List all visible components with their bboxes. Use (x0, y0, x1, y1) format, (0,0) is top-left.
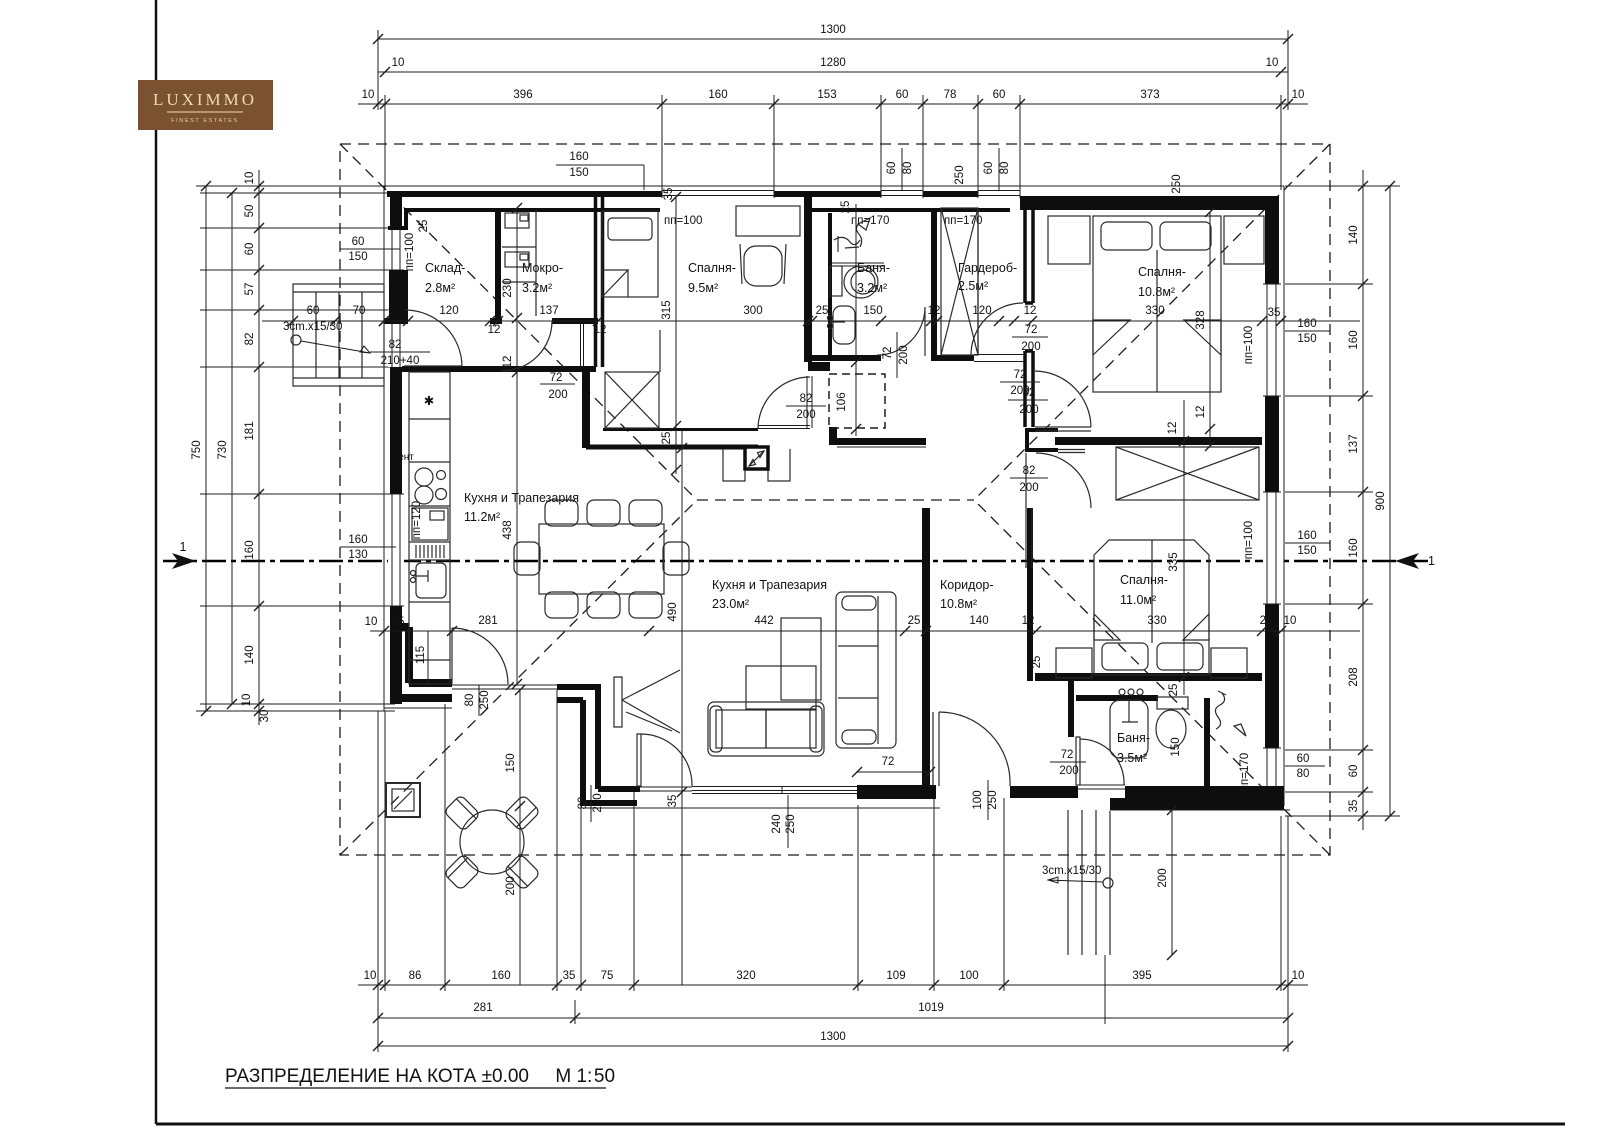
svg-text:153: 153 (817, 89, 836, 101)
svg-text:315: 315 (661, 300, 673, 319)
svg-text:1300: 1300 (820, 24, 846, 36)
svg-text:Кухня и Трапезария: Кухня и Трапезария (464, 491, 579, 505)
svg-text:Спалня-: Спалня- (1138, 265, 1186, 279)
svg-text:пп=120: пп=120 (411, 501, 423, 539)
svg-text:160: 160 (708, 89, 727, 101)
svg-text:210+40: 210+40 (381, 355, 420, 367)
svg-text:12: 12 (502, 356, 514, 369)
svg-text:3.5м²: 3.5м² (1117, 751, 1147, 765)
svg-text:160: 160 (569, 151, 588, 163)
svg-text:72: 72 (1014, 369, 1027, 381)
svg-text:250: 250 (479, 690, 491, 709)
svg-text:115: 115 (415, 646, 427, 664)
svg-text:1: 1 (180, 540, 187, 554)
svg-text:78: 78 (944, 89, 957, 101)
svg-text:25: 25 (908, 615, 921, 627)
svg-text:70: 70 (353, 305, 366, 317)
svg-text:3.2м²: 3.2м² (857, 281, 887, 295)
svg-text:150: 150 (863, 305, 882, 317)
svg-text:137: 137 (1348, 434, 1360, 453)
svg-text:150: 150 (1297, 545, 1316, 557)
svg-text:281: 281 (473, 1002, 492, 1014)
svg-text:23.0м²: 23.0м² (712, 597, 749, 611)
svg-text:82: 82 (800, 393, 813, 405)
svg-text:11.0м²: 11.0м² (1120, 593, 1156, 607)
svg-text:150: 150 (1297, 333, 1316, 345)
svg-text:160: 160 (491, 970, 510, 982)
svg-text:335: 335 (1168, 552, 1180, 571)
svg-text:35: 35 (667, 795, 679, 808)
svg-text:86: 86 (409, 970, 422, 982)
svg-text:12: 12 (928, 305, 941, 317)
svg-text:730: 730 (217, 440, 229, 459)
svg-text:60: 60 (896, 89, 909, 101)
svg-text:75: 75 (601, 970, 614, 982)
svg-text:1300: 1300 (820, 1031, 846, 1043)
svg-text:LUXIMMO: LUXIMMO (153, 90, 257, 109)
svg-text:25: 25 (1260, 615, 1273, 627)
svg-text:109: 109 (886, 970, 905, 982)
svg-text:72: 72 (1025, 324, 1038, 336)
svg-text:200: 200 (1059, 765, 1078, 777)
svg-text:10: 10 (1284, 615, 1297, 627)
svg-text:11.2м²: 11.2м² (464, 510, 500, 524)
svg-text:12: 12 (1022, 615, 1035, 627)
svg-text:60: 60 (307, 305, 320, 317)
svg-text:10.8м²: 10.8м² (940, 597, 977, 611)
svg-text:60: 60 (244, 243, 256, 256)
svg-text:12: 12 (594, 324, 607, 336)
svg-text:150: 150 (569, 167, 588, 179)
svg-text:12: 12 (1024, 305, 1037, 317)
svg-text:250: 250 (1171, 174, 1183, 193)
svg-text:пп=100: пп=100 (1243, 521, 1255, 559)
svg-text:25: 25 (418, 220, 430, 233)
svg-text:10: 10 (364, 970, 377, 982)
svg-text:50: 50 (244, 205, 256, 218)
svg-text:82: 82 (1023, 387, 1036, 399)
svg-text:373: 373 (1140, 89, 1159, 101)
svg-text:60: 60 (352, 236, 365, 248)
svg-text:120: 120 (439, 305, 458, 317)
svg-text:72: 72 (882, 756, 895, 768)
svg-text:10: 10 (1292, 89, 1305, 101)
svg-text:200: 200 (1021, 341, 1040, 353)
svg-text:200: 200 (1019, 404, 1038, 416)
svg-text:12: 12 (1167, 422, 1179, 435)
svg-text:200: 200 (548, 389, 567, 401)
svg-text:250: 250 (987, 790, 999, 809)
svg-text:вент: вент (393, 452, 414, 463)
svg-text:82: 82 (1023, 465, 1036, 477)
svg-text:130: 130 (348, 549, 367, 561)
svg-text:10: 10 (365, 616, 378, 628)
svg-text:100: 100 (959, 970, 978, 982)
svg-text:200: 200 (1019, 482, 1038, 494)
svg-text:35: 35 (663, 188, 675, 201)
svg-text:25: 25 (1031, 656, 1043, 669)
svg-text:10: 10 (1266, 57, 1279, 69)
svg-text:60: 60 (983, 162, 995, 175)
svg-text:3.2м²: 3.2м² (522, 281, 552, 295)
svg-text:80: 80 (999, 162, 1011, 175)
svg-text:396: 396 (513, 89, 532, 101)
svg-text:160: 160 (1297, 318, 1316, 330)
svg-text:80: 80 (464, 694, 476, 707)
svg-text:60: 60 (1348, 765, 1360, 778)
svg-text:230: 230 (502, 278, 514, 297)
svg-text:250: 250 (785, 814, 797, 833)
svg-text:35: 35 (1348, 800, 1360, 813)
svg-text:200: 200 (898, 345, 910, 364)
svg-text:FINEST ESTATES: FINEST ESTATES (171, 118, 239, 124)
svg-text:35: 35 (563, 970, 576, 982)
svg-text:320: 320 (736, 970, 755, 982)
svg-text:пп=100: пп=100 (1243, 326, 1255, 364)
svg-text:140: 140 (244, 645, 256, 664)
svg-text:1280: 1280 (820, 57, 846, 69)
svg-text:12: 12 (1195, 406, 1207, 419)
svg-text:240: 240 (771, 814, 783, 833)
svg-text:10: 10 (362, 89, 375, 101)
svg-text:160: 160 (1348, 538, 1360, 557)
svg-text:490: 490 (667, 602, 679, 621)
svg-text:пп=100: пп=100 (404, 233, 416, 271)
svg-text:82: 82 (244, 333, 256, 346)
svg-text:181: 181 (244, 421, 256, 440)
svg-text:150: 150 (1170, 737, 1182, 756)
svg-text:200: 200 (1157, 868, 1169, 887)
svg-text:160: 160 (1348, 330, 1360, 349)
svg-text:438: 438 (502, 520, 514, 539)
svg-text:80: 80 (577, 797, 589, 810)
svg-text:пп=170: пп=170 (1239, 753, 1251, 791)
svg-text:30: 30 (259, 710, 271, 723)
svg-text:72: 72 (1061, 749, 1074, 761)
svg-text:25: 25 (661, 432, 673, 445)
svg-text:137: 137 (539, 305, 558, 317)
svg-text:80: 80 (1297, 768, 1310, 780)
svg-text:300: 300 (743, 305, 762, 317)
svg-text:Склад-: Склад- (425, 261, 465, 275)
svg-text:57: 57 (244, 283, 256, 296)
svg-text:80: 80 (902, 162, 914, 175)
svg-text:Мокро-: Мокро- (522, 261, 563, 275)
svg-text:25: 25 (392, 616, 405, 628)
svg-text:2.8м²: 2.8м² (425, 281, 455, 295)
svg-text:РАЗПРЕДЕЛЕНИЕ НА КОТА ±0.00: РАЗПРЕДЕЛЕНИЕ НА КОТА ±0.00 М 1: 50 (225, 1066, 615, 1087)
svg-text:Гардероб-: Гардероб- (958, 261, 1017, 275)
svg-text:Спалня-: Спалня- (688, 261, 736, 275)
svg-text:208: 208 (1348, 667, 1360, 686)
svg-text:82: 82 (389, 339, 402, 351)
svg-text:Баня-: Баня- (1117, 731, 1150, 745)
svg-text:442: 442 (754, 615, 773, 627)
svg-text:750: 750 (191, 440, 203, 459)
svg-text:пп=170: пп=170 (944, 215, 982, 227)
svg-text:60: 60 (993, 89, 1006, 101)
svg-text:250: 250 (592, 793, 604, 812)
svg-text:150: 150 (505, 753, 517, 772)
svg-text:100: 100 (972, 790, 984, 809)
svg-text:12: 12 (488, 324, 501, 336)
svg-text:Баня-: Баня- (857, 261, 890, 275)
svg-text:Кухня и Трапезария: Кухня и Трапезария (712, 578, 827, 592)
svg-text:пп=100: пп=100 (664, 215, 702, 227)
svg-text:1: 1 (1428, 554, 1435, 568)
svg-text:60: 60 (1297, 753, 1310, 765)
svg-text:106: 106 (836, 392, 848, 411)
svg-text:35: 35 (1128, 794, 1140, 807)
svg-text:пп=170: пп=170 (851, 215, 889, 227)
svg-text:35: 35 (390, 305, 403, 317)
svg-text:35: 35 (1268, 307, 1281, 319)
svg-text:150: 150 (348, 251, 367, 263)
svg-text:Коридор-: Коридор- (940, 578, 994, 592)
svg-text:395: 395 (1132, 970, 1151, 982)
svg-text:200: 200 (796, 409, 815, 421)
svg-text:160: 160 (244, 540, 256, 559)
svg-text:250: 250 (954, 165, 966, 184)
svg-text:120: 120 (972, 305, 991, 317)
svg-text:9.5м²: 9.5м² (688, 281, 718, 295)
svg-text:160: 160 (348, 534, 367, 546)
svg-text:25: 25 (816, 305, 829, 317)
svg-text:10.8м²: 10.8м² (1138, 285, 1175, 299)
svg-text:200: 200 (505, 876, 517, 895)
svg-text:Спалня-: Спалня- (1120, 573, 1168, 587)
svg-text:330: 330 (1147, 615, 1166, 627)
svg-text:✱: ✱ (424, 394, 435, 408)
svg-text:25: 25 (840, 201, 852, 214)
svg-text:281: 281 (478, 615, 497, 627)
svg-text:72: 72 (550, 372, 563, 384)
svg-text:140: 140 (969, 615, 988, 627)
svg-text:60: 60 (886, 162, 898, 175)
svg-text:10: 10 (244, 172, 256, 185)
svg-text:72: 72 (882, 347, 894, 360)
svg-text:160: 160 (1297, 530, 1316, 542)
svg-text:330: 330 (1145, 305, 1164, 317)
svg-text:10: 10 (392, 57, 405, 69)
svg-text:900: 900 (1375, 491, 1387, 510)
svg-text:1019: 1019 (918, 1002, 944, 1014)
svg-text:140: 140 (1348, 225, 1360, 244)
svg-text:2.5м²: 2.5м² (958, 279, 988, 293)
svg-text:25: 25 (1168, 684, 1180, 697)
svg-text:3cm.x15/30: 3cm.x15/30 (1042, 865, 1101, 877)
svg-text:328: 328 (1195, 310, 1207, 329)
svg-text:10: 10 (1292, 970, 1305, 982)
